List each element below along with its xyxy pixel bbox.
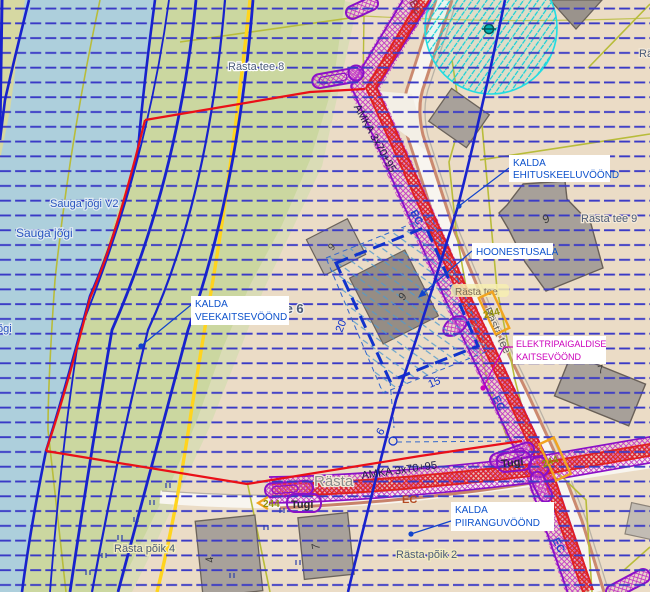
- svg-text:Sauga jõgi: Sauga jõgi: [16, 226, 73, 240]
- svg-text:ELEKTRIPAIGALDISE: ELEKTRIPAIGALDISE: [516, 339, 606, 349]
- svg-text:Rästa: Rästa: [314, 473, 354, 490]
- svg-text:HOONESTUSALA: HOONESTUSALA: [476, 247, 559, 258]
- svg-text:Rästa põik 4: Rästa põik 4: [114, 543, 175, 555]
- svg-text:õgi: õgi: [0, 323, 12, 335]
- svg-text:KALDA: KALDA: [455, 505, 488, 516]
- svg-text:KALDA: KALDA: [195, 299, 228, 310]
- svg-text:Rästa tee 9: Rästa tee 9: [581, 213, 637, 225]
- svg-text:244: 244: [263, 499, 280, 510]
- svg-text:Rästa tee 8: Rästa tee 8: [228, 61, 284, 73]
- svg-text:Tugi: Tugi: [291, 499, 313, 511]
- svg-text:VEEKAITSEVÖÖND: VEEKAITSEVÖÖND: [195, 311, 287, 323]
- svg-text:Rästa: Rästa: [639, 48, 650, 60]
- svg-text:Sauga jõgi V2: Sauga jõgi V2: [50, 198, 119, 210]
- svg-text:EC: EC: [402, 494, 417, 506]
- svg-text:Tugi: Tugi: [501, 456, 525, 470]
- svg-text:KAITSEVÖÖND: KAITSEVÖÖND: [516, 352, 582, 362]
- svg-text:Rästa põik 2: Rästa põik 2: [396, 549, 457, 561]
- svg-text:EHITUSKEELUVÖÖND: EHITUSKEELUVÖÖND: [513, 169, 619, 181]
- svg-text:KALDA: KALDA: [513, 158, 546, 169]
- svg-text:PIIRANGUVÖÖND: PIIRANGUVÖÖND: [455, 517, 540, 529]
